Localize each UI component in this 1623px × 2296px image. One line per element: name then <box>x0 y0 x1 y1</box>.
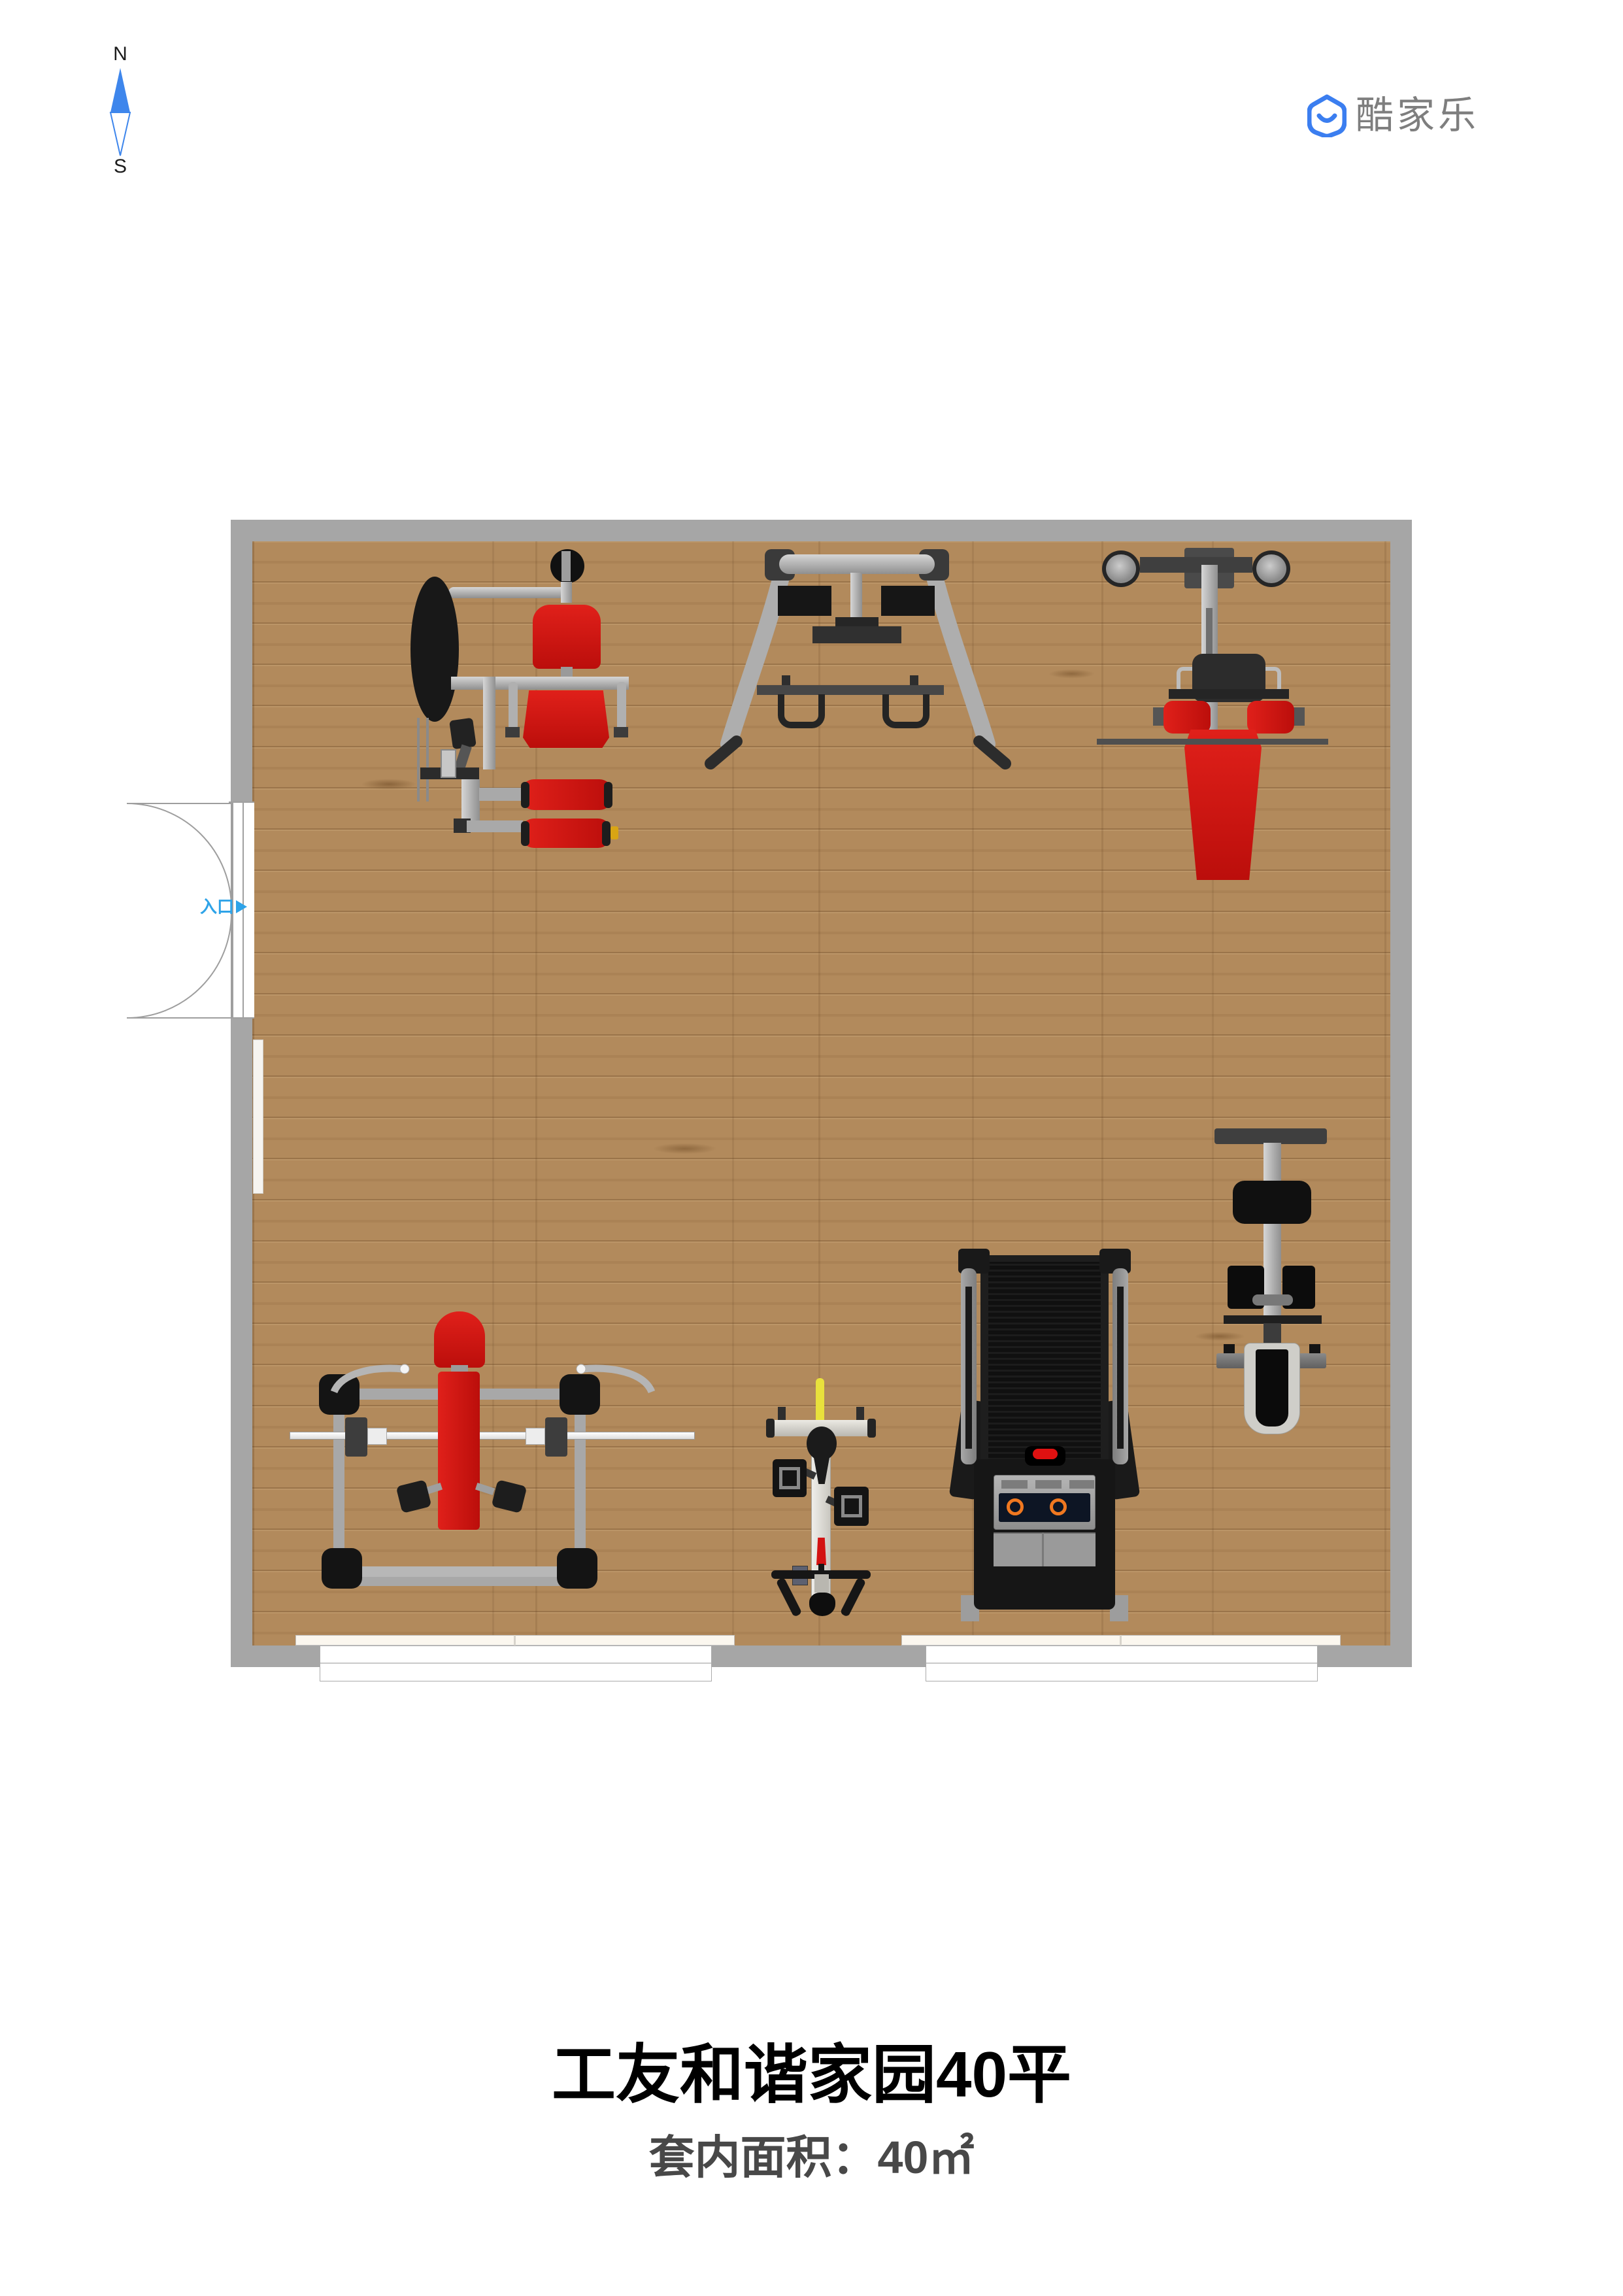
m4-handle-right-tip <box>577 1364 586 1374</box>
m2-handle-left <box>778 694 825 728</box>
shield-outline <box>1309 97 1345 136</box>
m1-roller1-cap-right <box>604 782 612 808</box>
m3-t-bar <box>1140 557 1252 573</box>
m1-cable-left <box>417 718 420 802</box>
m4-handle-right <box>582 1368 652 1392</box>
m2-pad-right <box>881 586 935 616</box>
m2-hook-left <box>782 675 790 686</box>
m2-pedestal-base <box>812 626 901 643</box>
m7-pad <box>1233 1181 1311 1224</box>
m7-collar <box>1252 1294 1293 1306</box>
brand-name: 酷家乐 <box>1356 97 1479 135</box>
m1-seat <box>523 690 609 748</box>
m2-leg-right <box>935 577 987 744</box>
m4-sleeve-right <box>526 1428 545 1445</box>
m2-top-bar <box>779 554 935 574</box>
m1-cable-right <box>426 718 429 802</box>
m1-roller1-cap-left <box>521 782 529 808</box>
m5-handlebar-cap-right <box>867 1419 876 1438</box>
m6-console-lower <box>994 1532 1096 1566</box>
m7-lug-right <box>1309 1344 1320 1354</box>
m4-handle-left <box>334 1368 403 1392</box>
m4-handle-left-tip <box>400 1364 409 1374</box>
m5-pedal-right-inner <box>841 1495 862 1517</box>
m6-console-slot3 <box>1069 1480 1094 1489</box>
m3-roller-left <box>1163 701 1211 734</box>
m1-seat-back <box>533 605 601 669</box>
m5-saddle <box>809 1593 835 1616</box>
m4-plate-left <box>345 1417 367 1457</box>
m5-post-left <box>778 1407 786 1420</box>
m6-dial-right <box>1050 1498 1067 1515</box>
m5-seat-base <box>814 1574 829 1593</box>
m6-rail-right-stripe <box>1117 1287 1124 1449</box>
m3-axle-right <box>1293 707 1305 726</box>
m3-long-bar <box>1097 739 1328 745</box>
m4-handles <box>290 1363 696 1409</box>
window-right-divider <box>1120 1635 1122 1646</box>
m4-bench <box>438 1372 480 1530</box>
m1-roller2 <box>521 819 611 848</box>
door-leaf-bottom <box>127 913 231 1018</box>
m5-red-accent <box>816 1538 826 1565</box>
m4-plate-right <box>545 1417 567 1457</box>
brand-shield-icon <box>1307 94 1347 137</box>
m1-arm-right-tip <box>614 727 628 737</box>
m1-roller2-cap-right <box>602 821 611 846</box>
m6-belt <box>988 1262 1101 1466</box>
m3-roller-right <box>1247 701 1294 734</box>
window-right-sill-line <box>926 1663 1317 1664</box>
compass-needle-icon <box>109 67 132 157</box>
m4-corner-bl <box>322 1548 362 1589</box>
window-left-divider <box>514 1635 516 1646</box>
compass-south-label: S <box>107 157 133 177</box>
m1-arm-left-tip <box>505 727 520 737</box>
m5-handlebar-cap-left <box>766 1419 775 1438</box>
m2-crossbar <box>757 685 944 695</box>
m2-hook-right <box>910 675 918 686</box>
compass-north-label: N <box>107 44 133 64</box>
entrance-arrow-icon <box>236 900 247 913</box>
m2-handle-right <box>882 694 929 728</box>
m7-bench-pad <box>1256 1349 1288 1427</box>
m1-neck <box>561 582 572 603</box>
m4-sleeve-left <box>367 1428 387 1445</box>
m7-lug-left <box>1224 1344 1235 1354</box>
m6-console-slot2 <box>1035 1480 1062 1489</box>
compass-needle-north-half <box>110 68 130 112</box>
m1-arm-left <box>509 682 518 733</box>
m5-yellow-post <box>816 1378 824 1427</box>
window-left-sill-line <box>320 1663 711 1664</box>
m1-head-pad <box>410 577 459 722</box>
m1-beam <box>451 677 629 690</box>
plan-title: 工友和谐家园40平 <box>0 2040 1623 2110</box>
m6-console-seam <box>1042 1532 1044 1566</box>
wall-ledge <box>253 1039 263 1194</box>
m6-console-slot1 <box>1001 1480 1028 1489</box>
m1-roller2-cap-left <box>521 821 529 846</box>
entrance-text: 入口 <box>200 898 234 915</box>
m2-leg-left <box>729 577 781 744</box>
m1-column <box>483 677 495 769</box>
m3-seat <box>1184 730 1262 880</box>
m1-top-bar <box>448 587 567 598</box>
plan-subtitle: 套内面积：40㎡ <box>0 2133 1623 2183</box>
entrance-label: 入口 <box>200 898 247 915</box>
m1-pulley-core <box>561 551 571 581</box>
m7-t-bar <box>1214 1128 1327 1144</box>
m1-knob <box>611 826 618 839</box>
compass-needle-south-half <box>110 112 130 156</box>
m6-dial-left <box>1007 1498 1024 1515</box>
m3-ball-right <box>1252 550 1290 587</box>
m4-headrest <box>434 1311 485 1368</box>
m6-stop-button <box>1033 1449 1058 1459</box>
m3-crossbar <box>1169 689 1289 699</box>
m5-pedal-left-inner <box>779 1467 800 1489</box>
m1-low-block <box>441 749 456 778</box>
m4-corner-br <box>557 1548 597 1589</box>
m1-roller1-link <box>479 788 522 801</box>
m2-pad-left <box>778 586 831 616</box>
m5-post-right <box>856 1407 864 1420</box>
m3-column-stripe <box>1206 608 1213 654</box>
m1-roller2-link <box>467 820 523 832</box>
door-leaf-top <box>127 803 231 908</box>
m4-bottom-rail <box>344 1566 575 1577</box>
m3-ball-left <box>1102 550 1140 587</box>
m1-arm-right <box>617 682 626 733</box>
m6-rail-left-stripe <box>965 1287 972 1449</box>
m2-center-post <box>850 573 862 622</box>
m1-roller1 <box>521 779 612 810</box>
